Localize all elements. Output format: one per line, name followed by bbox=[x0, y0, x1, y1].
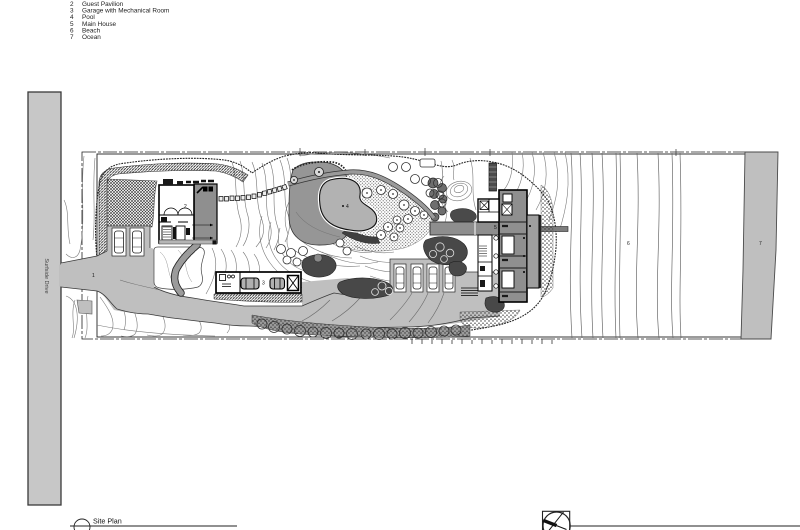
svg-text:4: 4 bbox=[346, 204, 349, 210]
svg-text:3: 3 bbox=[262, 281, 265, 287]
svg-text:Garage with Mechanical Room: Garage with Mechanical Room bbox=[82, 8, 169, 15]
svg-text:7: 7 bbox=[759, 241, 762, 247]
svg-text:2: 2 bbox=[184, 204, 187, 210]
svg-text:5: 5 bbox=[494, 225, 497, 231]
svg-text:6: 6 bbox=[627, 241, 630, 247]
svg-text:Site Plan: Site Plan bbox=[93, 517, 122, 526]
svg-text:Ocean: Ocean bbox=[82, 34, 101, 41]
svg-text:Surfside Drive: Surfside Drive bbox=[43, 258, 49, 293]
svg-text:1: 1 bbox=[92, 273, 95, 279]
svg-text:7: 7 bbox=[70, 34, 74, 41]
